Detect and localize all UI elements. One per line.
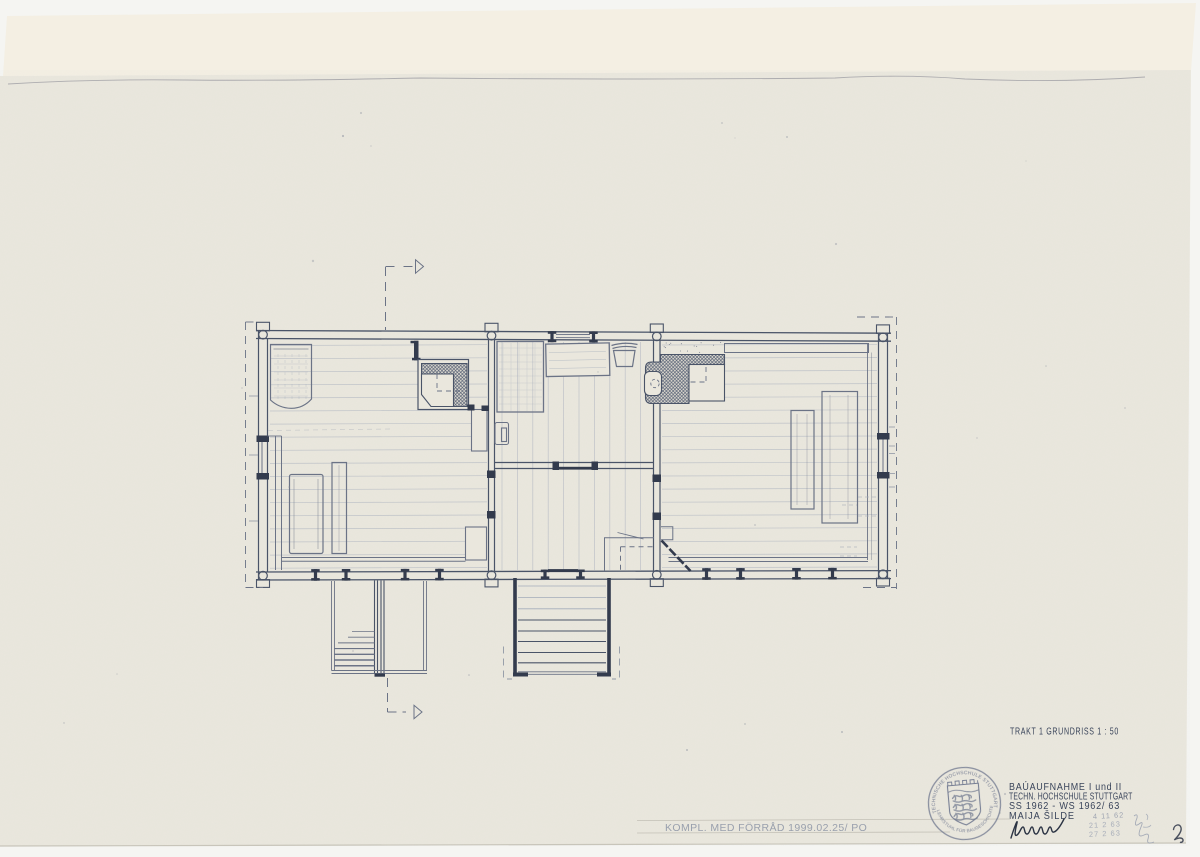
svg-text:KOMPL. MED FÖRRÅD 1999.02.25: KOMPL. MED FÖRRÅD 1999.02.25/ PO [665, 821, 868, 834]
svg-text:TRAKT 1 GRUNDRISS 1 : 50: TRAKT 1 GRUNDRISS 1 : 50 [1010, 726, 1119, 738]
svg-text:27 2 63: 27 2 63 [1089, 828, 1121, 839]
svg-text:MAIJA ŠILDE: MAIJA ŠILDE [1009, 811, 1075, 822]
